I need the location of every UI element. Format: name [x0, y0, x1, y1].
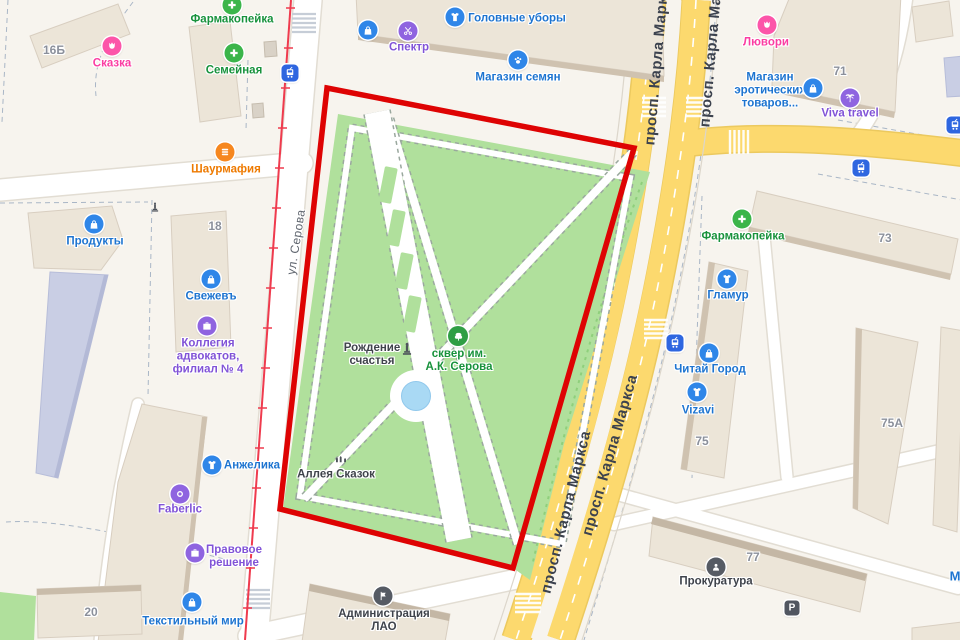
tshirt-icon[interactable]	[203, 456, 222, 475]
poi-label-glamur: Гламур	[707, 290, 748, 303]
poi-label-farmakopeika-right: Фармакопейка	[701, 231, 784, 244]
building-number-16b: 16Б	[43, 43, 65, 57]
poi-label-lyuvori: Лювори	[743, 37, 789, 50]
poi-label-chitay-gorod: Читай Город	[674, 364, 746, 377]
flower-icon[interactable]	[758, 16, 777, 35]
building-number-75a: 75А	[881, 416, 903, 430]
monument-icon	[401, 342, 414, 363]
bag-icon[interactable]	[85, 215, 104, 234]
tram-stop-icon[interactable]	[667, 335, 684, 352]
pond	[402, 382, 431, 411]
palm-icon[interactable]	[841, 89, 860, 108]
poi-label-semeynaya: Семейная	[206, 65, 263, 78]
parking-icon[interactable]: P	[785, 601, 800, 616]
map-canvas[interactable]: ул. Серова просп. Карла Маркса просп. Ка…	[0, 0, 960, 640]
tshirt-icon[interactable]	[688, 383, 707, 402]
poi-label-rozhdenie: Рождение счастья	[344, 342, 401, 368]
poi-label-pravovoe: Правовое решение	[206, 544, 262, 570]
poi-label-golovnye-ubory: Головные уборы	[468, 13, 566, 26]
burger-icon[interactable]	[216, 143, 235, 162]
poi-label-produkty: Продукты	[66, 236, 123, 249]
ring-icon[interactable]	[171, 485, 190, 504]
poi-label-tekstilny-mir: Текстильный мир	[142, 616, 244, 629]
poi-label-magazin-erot: Магазин эротических товаров...	[734, 72, 805, 111]
poi-label-farmakopeika-top: Фармакопейка	[190, 14, 273, 27]
building-number-75: 75	[695, 434, 708, 448]
tram-stop-icon[interactable]	[853, 160, 870, 177]
building-number-73: 73	[878, 231, 891, 245]
poi-label-skazka: Сказка	[93, 58, 131, 71]
cross-icon[interactable]	[733, 210, 752, 229]
building-number-77: 77	[746, 550, 759, 564]
poi-label-vizavi: Vizavi	[682, 405, 714, 418]
poi-label-viva-travel: Viva travel	[821, 108, 878, 121]
tshirt-icon[interactable]	[718, 270, 737, 289]
briefcase-icon[interactable]	[198, 317, 217, 336]
emblem-icon[interactable]	[707, 558, 726, 577]
building-number-20: 20	[84, 605, 97, 619]
briefcase-icon[interactable]	[186, 544, 205, 563]
paw-icon[interactable]	[509, 51, 528, 70]
monument-icon	[150, 201, 160, 219]
cross-icon[interactable]	[225, 44, 244, 63]
poi-label-faberlic: Faberlic	[158, 504, 202, 517]
bag-icon[interactable]	[804, 79, 823, 98]
green-patch	[0, 592, 36, 640]
poi-label-shaurmafia: Шаурмафия	[191, 164, 261, 177]
poi-label-administratsiya: Администрация ЛАО	[338, 608, 430, 634]
flag-icon[interactable]	[374, 587, 393, 606]
bag-icon[interactable]	[359, 21, 378, 40]
poi-label-alleya: Аллея Сказок	[297, 469, 375, 482]
poi-label-anzhelika: Анжелика	[224, 460, 280, 473]
poi-label-spektr: Спектр	[389, 42, 429, 55]
poi-label-magazin-semyan: Магазин семян	[475, 72, 560, 85]
poi-label-prokuratura: Прокуратура	[679, 576, 752, 589]
bag-icon[interactable]	[700, 344, 719, 363]
scissors-icon[interactable]	[399, 22, 418, 41]
tree-icon[interactable]	[448, 326, 468, 346]
bag-icon[interactable]	[202, 270, 221, 289]
statues-icon	[334, 451, 349, 469]
tram-stop-icon[interactable]	[947, 117, 960, 134]
partial-poi-letter: М	[950, 569, 960, 584]
tshirt-icon[interactable]	[446, 8, 465, 27]
building-number-71: 71	[833, 64, 846, 78]
poi-label-skver: сквер им. А.К. Серова	[426, 348, 493, 374]
bag-icon[interactable]	[183, 593, 202, 612]
poi-label-kollegiya: Коллегия адвокатов, филиал № 4	[173, 338, 244, 377]
tram-stop-icon[interactable]	[282, 65, 299, 82]
flower-icon[interactable]	[103, 37, 122, 56]
building-number-18: 18	[208, 219, 221, 233]
poi-label-svezhev: Свежевъ	[185, 291, 236, 304]
